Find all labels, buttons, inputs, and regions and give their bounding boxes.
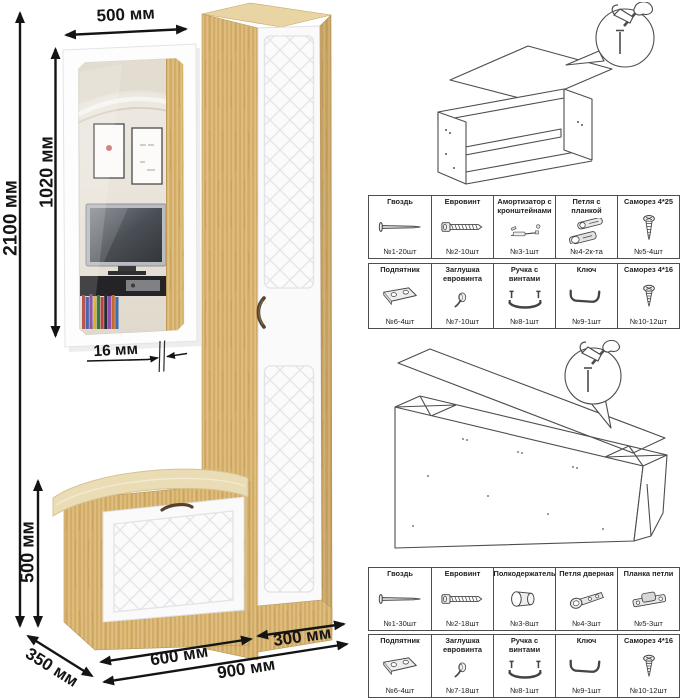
part-name: Заглушка евровинта [433, 637, 492, 654]
part-qty: №1-30шт [384, 619, 417, 628]
part-qty: №5-4шт [634, 247, 663, 256]
hex-key-icon [564, 653, 610, 679]
part-name: Евровинт [445, 198, 481, 207]
part-name: Гвоздь [387, 198, 413, 207]
part-qty: №9-1шт [572, 317, 601, 326]
hinge-with-plate-icon [564, 218, 610, 244]
part-name: Ключ [577, 637, 597, 646]
handle-icon [502, 657, 548, 683]
part-qty: №10-12шт [630, 686, 667, 695]
hex-key-icon [564, 283, 610, 309]
parts-cell: Ручка с винтами №8-1шт [493, 635, 555, 697]
part-name: Петля дверная [559, 570, 614, 579]
furniture-dimension-drawing: 2100 мм 1020 мм 500 мм 500 мм 350 мм 600… [0, 0, 370, 700]
part-qty: №3-8шт [510, 619, 539, 628]
part-name: Саморез 4*16 [624, 637, 673, 646]
parts-cell: Подпятник №6-4шт [369, 264, 431, 328]
door-hinge-icon [564, 586, 610, 612]
wall-mirror [60, 44, 201, 372]
furniture-spec-sheet: 2100 мм 1020 мм 500 мм 500 мм 350 мм 600… [0, 0, 680, 700]
shoe-bench [53, 469, 250, 650]
screw-icon [626, 214, 672, 240]
part-qty: №2-10шт [446, 247, 479, 256]
part-name: Ключ [577, 266, 597, 275]
parts-cell: Подпятник №6-4шт [369, 635, 431, 697]
parts-cell: Евровинт №2-10шт [431, 196, 493, 258]
cabinet-door-lower-panel [265, 366, 314, 592]
part-name: Заглушка евровинта [433, 266, 492, 283]
part-name: Планка петли [624, 570, 674, 579]
bench-assembly-diagram [368, 2, 680, 194]
part-qty: №10-12шт [630, 317, 667, 326]
screw-icon [626, 653, 672, 679]
bench-parts-table-row1: Гвоздь №1-20шт Евровинт №2-10шт Амортиза… [368, 195, 680, 259]
euroscrew-icon [440, 214, 486, 240]
part-name: Полкодержатель [494, 570, 555, 579]
dim-line-thickness-right [167, 354, 187, 357]
part-name: Амортизатор с кронштейнами [495, 198, 554, 215]
nail-icon [377, 214, 423, 240]
cap-icon [440, 660, 486, 680]
part-name: Подпятник [380, 266, 420, 275]
gas-strut-icon [502, 222, 548, 240]
parts-cell: Ключ №9-1шт [555, 635, 617, 697]
part-qty: №2-18шт [446, 619, 479, 628]
parts-cell: Заглушка евровинта №7-18шт [431, 635, 493, 697]
glide-icon [377, 653, 423, 679]
bench-parts-table-row2: Подпятник №6-4шт Заглушка евровинта №7-1… [368, 263, 680, 329]
part-name: Саморез 4*25 [624, 198, 673, 207]
part-qty: №7-10шт [446, 317, 479, 326]
back-panel [450, 46, 612, 102]
parts-cell: Ручка с винтами №8-1шт [493, 264, 555, 328]
hinge-plate-icon [626, 586, 672, 612]
parts-cell: Саморез 4*25 №5-4шт [617, 196, 679, 258]
dim-bench-height-label: 500 мм [17, 521, 37, 583]
parts-cell: Гвоздь №1-30шт [369, 568, 431, 630]
side-panel-right [564, 89, 592, 160]
part-qty: №4-3шт [572, 619, 601, 628]
parts-cell: Петля с планкой №4-2к-та [555, 196, 617, 258]
nail-icon [377, 586, 423, 612]
part-name: Ручка с винтами [495, 266, 554, 283]
parts-cell: Саморез 4*16 №10-12шт [617, 635, 679, 697]
dim-mirror-width-label: 500 мм [96, 3, 155, 25]
dim-line-thickness-left [148, 358, 158, 360]
parts-cell: Ключ №9-1шт [555, 264, 617, 328]
dim-total-width-label: 900 мм [216, 655, 277, 683]
part-name: Гвоздь [387, 570, 413, 579]
part-qty: №6-4шт [386, 317, 415, 326]
side-panel-left [438, 112, 466, 184]
hand-icon [634, 2, 653, 15]
parts-cell: Евровинт №2-18шт [431, 568, 493, 630]
glide-icon [377, 283, 423, 309]
cabinet-assembly-diagram [368, 336, 680, 565]
bench-flap-panel [114, 511, 233, 612]
part-qty: №1-20шт [384, 247, 417, 256]
part-name: Евровинт [445, 570, 481, 579]
part-qty: №6-4шт [386, 686, 415, 695]
cabinet-parts-table-row1: Гвоздь №1-30шт Евровинт №2-18шт Полкодер… [368, 567, 680, 631]
parts-cell: Планка петли №5-3шт [617, 568, 679, 630]
parts-cell: Саморез 4*16 №10-12шт [617, 264, 679, 328]
screw-icon [626, 283, 672, 309]
shelf-pin-icon [502, 586, 548, 612]
part-qty: №9-1шт [572, 686, 601, 695]
parts-cell: Петля дверная №4-3шт [555, 568, 617, 630]
parts-cell: Полкодержатель №3-8шт [493, 568, 555, 630]
dim-thickness-label: 16 мм [93, 341, 138, 360]
parts-cell: Заглушка евровинта №7-10шт [431, 264, 493, 328]
part-qty: №7-18шт [446, 686, 479, 695]
part-name: Саморез 4*16 [624, 266, 673, 275]
part-name: Ручка с винтами [495, 637, 554, 654]
cap-icon [440, 290, 486, 310]
euroscrew-icon [440, 586, 486, 612]
mirror-thickness-tick [164, 341, 165, 372]
mirror-thickness-tick [159, 341, 160, 372]
part-name: Петля с планкой [557, 198, 616, 215]
cabinet-parts-table-row2: Подпятник №6-4шт Заглушка евровинта №7-1… [368, 634, 680, 698]
dim-line-mirror-width [66, 29, 186, 35]
handle-icon [502, 287, 548, 313]
dim-total-height-label: 2100 мм [1, 180, 22, 256]
hand-icon [603, 340, 620, 352]
parts-cell: Гвоздь №1-20шт [369, 196, 431, 258]
part-qty: №3-1шт [510, 247, 539, 256]
part-name: Подпятник [380, 637, 420, 646]
cabinet-door-upper-panel [265, 36, 314, 288]
part-qty: №8-1шт [510, 686, 539, 695]
part-qty: №4-2к-та [570, 247, 603, 256]
parts-cell: Амортизатор с кронштейнами №3-1шт [493, 196, 555, 258]
part-qty: №8-1шт [510, 317, 539, 326]
dim-mirror-height-label: 1020 мм [36, 136, 56, 208]
part-qty: №5-3шт [634, 619, 663, 628]
